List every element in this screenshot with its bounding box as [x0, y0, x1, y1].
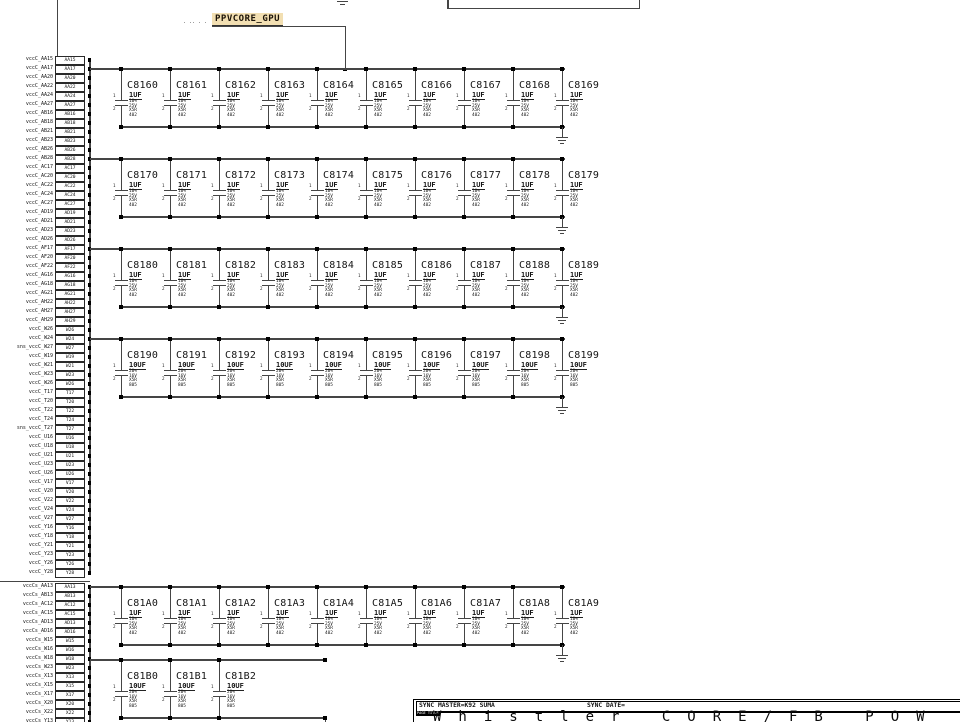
cap-ref-C8199: C8199: [568, 351, 599, 362]
cap-ref-C8166: C8166: [421, 81, 452, 92]
net-label: vccCs_AC15: [0, 611, 53, 616]
cap-pin-number: 1: [456, 612, 459, 616]
cap-ref-C81A0: C81A0: [127, 599, 158, 610]
ground-lead: [562, 645, 563, 655]
junction-dot: [88, 427, 91, 430]
junction-dot: [364, 643, 367, 646]
cap-lead: [317, 106, 318, 127]
ground-icon: [337, 1, 348, 2]
junction-dot: [88, 94, 91, 97]
cap-lead: [366, 587, 367, 618]
cap-lead: [464, 69, 465, 100]
cap-lead: [170, 660, 171, 691]
net-label: vccC_AD21: [0, 219, 53, 224]
junction-dot: [88, 112, 91, 115]
cap-specs: 10% 25V X5R 402: [374, 280, 382, 298]
net-label: vccC_AD19: [0, 210, 53, 215]
cap-lead: [121, 587, 122, 618]
cap-plate: [115, 691, 128, 692]
pin-box-W19: W19: [55, 353, 85, 362]
cap-pin-number: 2: [211, 107, 214, 111]
cap-ref-C8184: C8184: [323, 261, 354, 272]
cap-lead: [170, 339, 171, 370]
pin-box-AD26: AD26: [55, 236, 85, 245]
net-label: vccC_U23: [0, 462, 53, 467]
pin-box-X20: X20: [55, 700, 85, 709]
junction-dot: [511, 395, 514, 398]
pin-box-Y21: Y21: [55, 542, 85, 551]
net-label: vccC_T17: [0, 390, 53, 395]
cap-pin-number: 1: [162, 685, 165, 689]
cap-specs: 10% 25V X5R 402: [374, 190, 382, 208]
cap-ref-C81A2: C81A2: [225, 599, 256, 610]
cap-pin-number: 1: [358, 274, 361, 278]
cap-pin-number: 1: [554, 364, 557, 368]
cap-pin-number: 1: [505, 184, 508, 188]
cap-pin-number: 2: [358, 197, 361, 201]
cap-ref-C8194: C8194: [323, 351, 354, 362]
junction-dot: [88, 238, 91, 241]
net-label: vccC_AB23: [0, 138, 53, 143]
cap-lead: [366, 196, 367, 217]
cap-plate: [458, 190, 471, 191]
ground-icon: [556, 137, 568, 138]
cap-lead: [317, 286, 318, 307]
cap-pin-number: 2: [505, 287, 508, 291]
junction-dot: [88, 391, 91, 394]
junction-dot: [413, 305, 416, 308]
cap-pin-number: 2: [211, 197, 214, 201]
cap-lead: [562, 159, 563, 190]
junction-dot: [462, 125, 465, 128]
cap-plate: [458, 100, 471, 101]
junction-dot: [462, 337, 465, 340]
cap-ref-C8161: C8161: [176, 81, 207, 92]
junction-dot: [168, 125, 171, 128]
pin-box-V27: V27: [55, 515, 85, 524]
ground-icon: [558, 230, 566, 231]
cap-pin-number: 2: [162, 625, 165, 629]
net-label: sns_vccC_W27: [0, 345, 53, 350]
cap-lead: [121, 106, 122, 127]
cap-lead: [170, 376, 171, 397]
pin-box-AB18: AB18: [55, 119, 85, 128]
junction-dot: [88, 184, 91, 187]
cap-ref-C81B1: C81B1: [176, 672, 207, 683]
net-label: vccCs_W15: [0, 638, 53, 643]
cap-lead: [170, 106, 171, 127]
cap-pin-number: 1: [505, 274, 508, 278]
junction-dot: [511, 247, 514, 250]
junction-dot: [511, 337, 514, 340]
wire: [90, 338, 565, 340]
cap-pin-number: 1: [456, 184, 459, 188]
net-label-ppvcore-gpu[interactable]: PPVCORE_GPU: [212, 13, 283, 26]
junction-dot: [119, 643, 122, 646]
junction-dot: [119, 157, 122, 160]
pin-box-V22: V22: [55, 497, 85, 506]
ground-icon: [560, 413, 564, 414]
cap-lead: [219, 159, 220, 190]
pin-box-U26: U26: [55, 470, 85, 479]
cap-pin-number: 1: [211, 94, 214, 98]
net-label: vccC_AC17: [0, 165, 53, 170]
cap-ref-C8188: C8188: [519, 261, 550, 272]
cap-ref-C8167: C8167: [470, 81, 501, 92]
cap-ref-C8168: C8168: [519, 81, 550, 92]
cap-specs: 10% 25V X5R 402: [276, 618, 284, 636]
cap-specs: 10% 25V X5R 402: [521, 190, 529, 208]
cap-lead: [464, 624, 465, 645]
cap-pin-number: 2: [505, 625, 508, 629]
pin-box-Y28: Y28: [55, 569, 85, 578]
junction-dot: [364, 67, 367, 70]
cap-ref-C8198: C8198: [519, 351, 550, 362]
junction-dot: [364, 585, 367, 588]
junction-dot: [266, 215, 269, 218]
cap-lead: [268, 106, 269, 127]
junction-dot: [511, 67, 514, 70]
cap-lead: [562, 376, 563, 397]
cap-lead: [415, 286, 416, 307]
junction-dot: [88, 139, 91, 142]
pin-box-AB28: AB28: [55, 155, 85, 164]
junction-dot: [413, 215, 416, 218]
junction-dot: [217, 215, 220, 218]
junction-dot: [88, 490, 91, 493]
cap-plate: [164, 100, 177, 101]
ground-icon: [558, 658, 566, 659]
net-label: vccC_AB16: [0, 111, 53, 116]
junction-dot: [88, 76, 91, 79]
pin-box-AA22: AA22: [55, 83, 85, 92]
junction-dot: [511, 305, 514, 308]
ground-icon: [556, 317, 568, 318]
net-label: vccC_Y18: [0, 534, 53, 539]
cap-ref-C8160: C8160: [127, 81, 158, 92]
cap-pin-number: 1: [554, 612, 557, 616]
wire: [212, 26, 346, 27]
junction-dot: [364, 305, 367, 308]
cap-plate: [556, 370, 569, 371]
cap-specs: 10% 25V X5R 402: [423, 100, 431, 118]
pin-box-AC12: AC12: [55, 601, 85, 610]
net-label: vccC_AG18: [0, 282, 53, 287]
junction-dot: [168, 585, 171, 588]
ground-icon: [560, 233, 564, 234]
cap-plate: [311, 370, 324, 371]
cap-ref-C8165: C8165: [372, 81, 403, 92]
cap-pin-number: 2: [260, 377, 263, 381]
cap-pin-number: 2: [113, 107, 116, 111]
cap-plate: [360, 370, 373, 371]
cap-lead: [464, 587, 465, 618]
wire: [345, 26, 346, 70]
junction-dot: [88, 220, 91, 223]
cap-plate: [311, 280, 324, 281]
cap-pin-number: 1: [113, 364, 116, 368]
cap-plate: [360, 190, 373, 191]
pin-box-U23: U23: [55, 461, 85, 470]
cap-lead: [317, 376, 318, 397]
junction-dot: [88, 648, 91, 651]
junction-dot: [168, 395, 171, 398]
junction-dot: [511, 157, 514, 160]
net-label: vccCs_X13: [0, 674, 53, 679]
junction-dot: [88, 202, 91, 205]
cap-pin-number: 1: [309, 364, 312, 368]
cap-specs: 10% 25V X5R 402: [521, 100, 529, 118]
cap-ref-C8181: C8181: [176, 261, 207, 272]
junction-dot: [364, 125, 367, 128]
junction-dot: [560, 247, 563, 250]
cap-pin-number: 1: [260, 612, 263, 616]
net-label: vccCs_AA13: [0, 584, 53, 589]
net-label: vccC_AF17: [0, 246, 53, 251]
junction-dot: [88, 418, 91, 421]
cap-plate: [164, 370, 177, 371]
cap-plate: [262, 190, 275, 191]
junction-dot: [217, 658, 220, 661]
cap-specs: 10% 25V X5R 402: [178, 280, 186, 298]
cap-lead: [562, 106, 563, 127]
cap-pin-number: 2: [113, 197, 116, 201]
cap-pin-number: 2: [456, 287, 459, 291]
cap-lead: [562, 624, 563, 645]
junction-dot: [88, 666, 91, 669]
cap-lead: [562, 196, 563, 217]
cap-plate: [458, 280, 471, 281]
cap-lead: [366, 159, 367, 190]
junction-dot: [88, 310, 91, 313]
junction-dot: [266, 585, 269, 588]
cap-lead: [562, 69, 563, 100]
cap-specs: 10% 25V X5R 402: [325, 190, 333, 208]
wire: [90, 586, 565, 588]
pin-box-AD21: AD21: [55, 218, 85, 227]
cap-pin-number: 2: [456, 107, 459, 111]
cap-lead: [268, 587, 269, 618]
pin-box-AF17: AF17: [55, 245, 85, 254]
cap-plate: [556, 618, 569, 619]
cap-lead: [268, 376, 269, 397]
junction-dot: [88, 103, 91, 106]
cap-lead: [219, 339, 220, 370]
cap-ref-C8172: C8172: [225, 171, 256, 182]
junction-dot: [413, 585, 416, 588]
pin-box-X17: X17: [55, 691, 85, 700]
junction-dot: [217, 247, 220, 250]
cap-specs: 20% 16V X5R 805: [129, 691, 137, 709]
cap-lead: [317, 249, 318, 280]
junction-dot: [217, 716, 220, 719]
net-label: vccC_Y16: [0, 525, 53, 530]
cap-pin-number: 1: [456, 94, 459, 98]
cap-plate: [409, 618, 422, 619]
cap-specs: 10% 25V X5R 402: [227, 618, 235, 636]
pin-box-AC20: AC20: [55, 173, 85, 182]
junction-dot: [315, 337, 318, 340]
junction-dot: [315, 643, 318, 646]
cap-pin-number: 2: [456, 377, 459, 381]
cap-lead: [464, 249, 465, 280]
net-label: vccC_Y21: [0, 543, 53, 548]
cap-plate: [556, 280, 569, 281]
junction-dot: [88, 535, 91, 538]
junction-dot: [413, 643, 416, 646]
wire: [121, 644, 565, 646]
junction-dot: [168, 305, 171, 308]
cap-specs: 10% 25V X5R 402: [521, 618, 529, 636]
cap-pin-number: 2: [211, 377, 214, 381]
junction-dot: [88, 319, 91, 322]
net-label: vccC_AG21: [0, 291, 53, 296]
cap-plate: [213, 618, 226, 619]
cap-lead: [562, 286, 563, 307]
cap-lead: [513, 196, 514, 217]
junction-dot: [168, 643, 171, 646]
junction-dot: [266, 395, 269, 398]
cutoff-box-edge: [639, 0, 641, 8]
cap-pin-number: 2: [407, 625, 410, 629]
junction-dot: [413, 395, 416, 398]
net-label: vccC_W26: [0, 327, 53, 332]
cap-lead: [464, 339, 465, 370]
pin-box-T17: T17: [55, 389, 85, 398]
junction-dot: [88, 121, 91, 124]
cap-specs: 10% 25V X5R 402: [521, 280, 529, 298]
cap-lead: [121, 376, 122, 397]
cap-ref-C8185: C8185: [372, 261, 403, 272]
junction-dot: [511, 585, 514, 588]
junction-dot: [88, 148, 91, 151]
cap-lead: [366, 249, 367, 280]
cap-pin-number: 2: [358, 625, 361, 629]
wire: [0, 581, 90, 582]
net-label: vccC_W26: [0, 381, 53, 386]
cap-pin-number: 1: [456, 274, 459, 278]
pin-box-AC27: AC27: [55, 200, 85, 209]
cap-specs: 10% 25V X5R 402: [178, 100, 186, 118]
cap-pin-number: 2: [113, 377, 116, 381]
cap-pin-number: 2: [554, 287, 557, 291]
cap-ref-C8174: C8174: [323, 171, 354, 182]
net-label: vccC_V24: [0, 507, 53, 512]
net-label: vccCs_X22: [0, 710, 53, 715]
cap-plate: [458, 370, 471, 371]
junction-dot: [462, 643, 465, 646]
cap-ref-C81A4: C81A4: [323, 599, 354, 610]
junction-dot: [88, 175, 91, 178]
cap-plate: [213, 280, 226, 281]
junction-dot: [315, 67, 318, 70]
cap-specs: 10% 25V X5R 402: [325, 280, 333, 298]
cap-plate: [164, 691, 177, 692]
cap-pin-number: 2: [309, 377, 312, 381]
cap-pin-number: 2: [309, 287, 312, 291]
pin-box-AD16: AD16: [55, 628, 85, 637]
cap-ref-C8192: C8192: [225, 351, 256, 362]
cap-plate: [360, 280, 373, 281]
cap-lead: [562, 587, 563, 618]
cap-specs: 10% 25V X5R 402: [129, 618, 137, 636]
junction-dot: [560, 585, 563, 588]
cap-plate: [115, 280, 128, 281]
cap-pin-number: 1: [358, 94, 361, 98]
cap-pin-number: 1: [260, 94, 263, 98]
cap-pin-number: 2: [407, 107, 410, 111]
cap-lead: [268, 286, 269, 307]
cap-lead: [219, 624, 220, 645]
pin-box-AD13: AD13: [55, 619, 85, 628]
junction-dot: [88, 639, 91, 642]
cap-specs: 20% 16V X5R 805: [227, 370, 235, 388]
cap-plate: [409, 190, 422, 191]
cap-lead: [317, 159, 318, 190]
junction-dot: [266, 247, 269, 250]
net-label: vccC_T22: [0, 408, 53, 413]
cap-ref-C81A5: C81A5: [372, 599, 403, 610]
junction-dot: [217, 125, 220, 128]
cap-plate: [556, 100, 569, 101]
cap-pin-number: 1: [456, 364, 459, 368]
net-label: vccC_U16: [0, 435, 53, 440]
pin-box-AH22: AH22: [55, 299, 85, 308]
cap-plate: [507, 100, 520, 101]
cap-pin-number: 1: [358, 612, 361, 616]
junction-dot: [88, 283, 91, 286]
ground-icon: [558, 140, 566, 141]
cap-pin-number: 1: [505, 364, 508, 368]
wire: [90, 659, 325, 661]
net-label: vccC_U21: [0, 453, 53, 458]
schematic-canvas: . .. . . PPVCORE_GPU SYNC MASTER=K92 SUM…: [0, 0, 960, 722]
cap-lead: [366, 376, 367, 397]
cap-pin-number: 2: [211, 698, 214, 702]
cap-lead: [415, 106, 416, 127]
junction-dot: [413, 157, 416, 160]
pin-box-AC15: AC15: [55, 610, 85, 619]
pin-box-T20: T20: [55, 398, 85, 407]
cap-lead: [513, 159, 514, 190]
title-block: SYNC MASTER=K92 SUMA SYNC DATE= PAGE TIT…: [413, 699, 960, 722]
pin-box-X22: X22: [55, 709, 85, 718]
ground-lead: [562, 397, 563, 407]
cap-ref-C8186: C8186: [421, 261, 452, 272]
cap-lead: [268, 159, 269, 190]
pin-box-V20: V20: [55, 488, 85, 497]
cap-pin-number: 2: [211, 287, 214, 291]
cap-ref-C8163: C8163: [274, 81, 305, 92]
cap-pin-number: 2: [456, 625, 459, 629]
cap-ref-C81A6: C81A6: [421, 599, 452, 610]
net-label: vccC_AA22: [0, 84, 53, 89]
cap-pin-number: 2: [358, 377, 361, 381]
cap-lead: [170, 587, 171, 618]
cap-lead: [366, 286, 367, 307]
cap-lead: [268, 196, 269, 217]
cap-lead: [219, 660, 220, 691]
cap-pin-number: 2: [309, 107, 312, 111]
junction-dot: [364, 337, 367, 340]
cap-lead: [121, 660, 122, 691]
cap-pin-number: 1: [309, 274, 312, 278]
cap-specs: 20% 16V X5R 805: [325, 370, 333, 388]
net-label: vccC_AA24: [0, 93, 53, 98]
pin-box-AC24: AC24: [55, 191, 85, 200]
net-label: vccCs_AD13: [0, 620, 53, 625]
net-label: vccCs_W16: [0, 647, 53, 652]
